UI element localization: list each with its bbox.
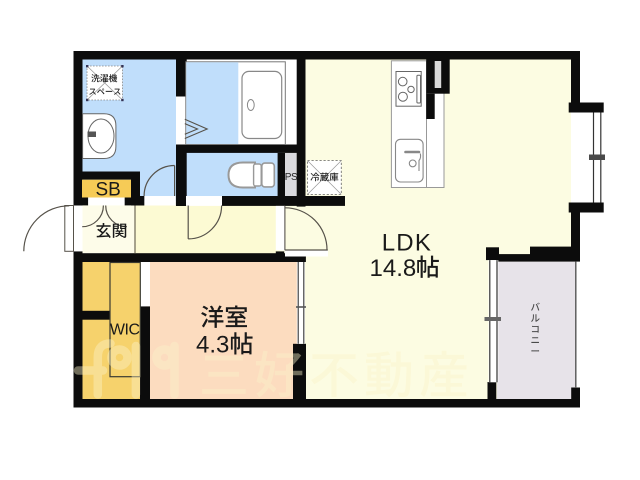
svg-text:4.3: 4.3 bbox=[196, 332, 229, 359]
svg-text:WIC: WIC bbox=[110, 322, 140, 339]
svg-text:LDK: LDK bbox=[382, 229, 432, 256]
svg-text:14.8: 14.8 bbox=[370, 255, 417, 282]
svg-text:SB: SB bbox=[96, 179, 121, 200]
svg-text:PS: PS bbox=[285, 172, 298, 183]
